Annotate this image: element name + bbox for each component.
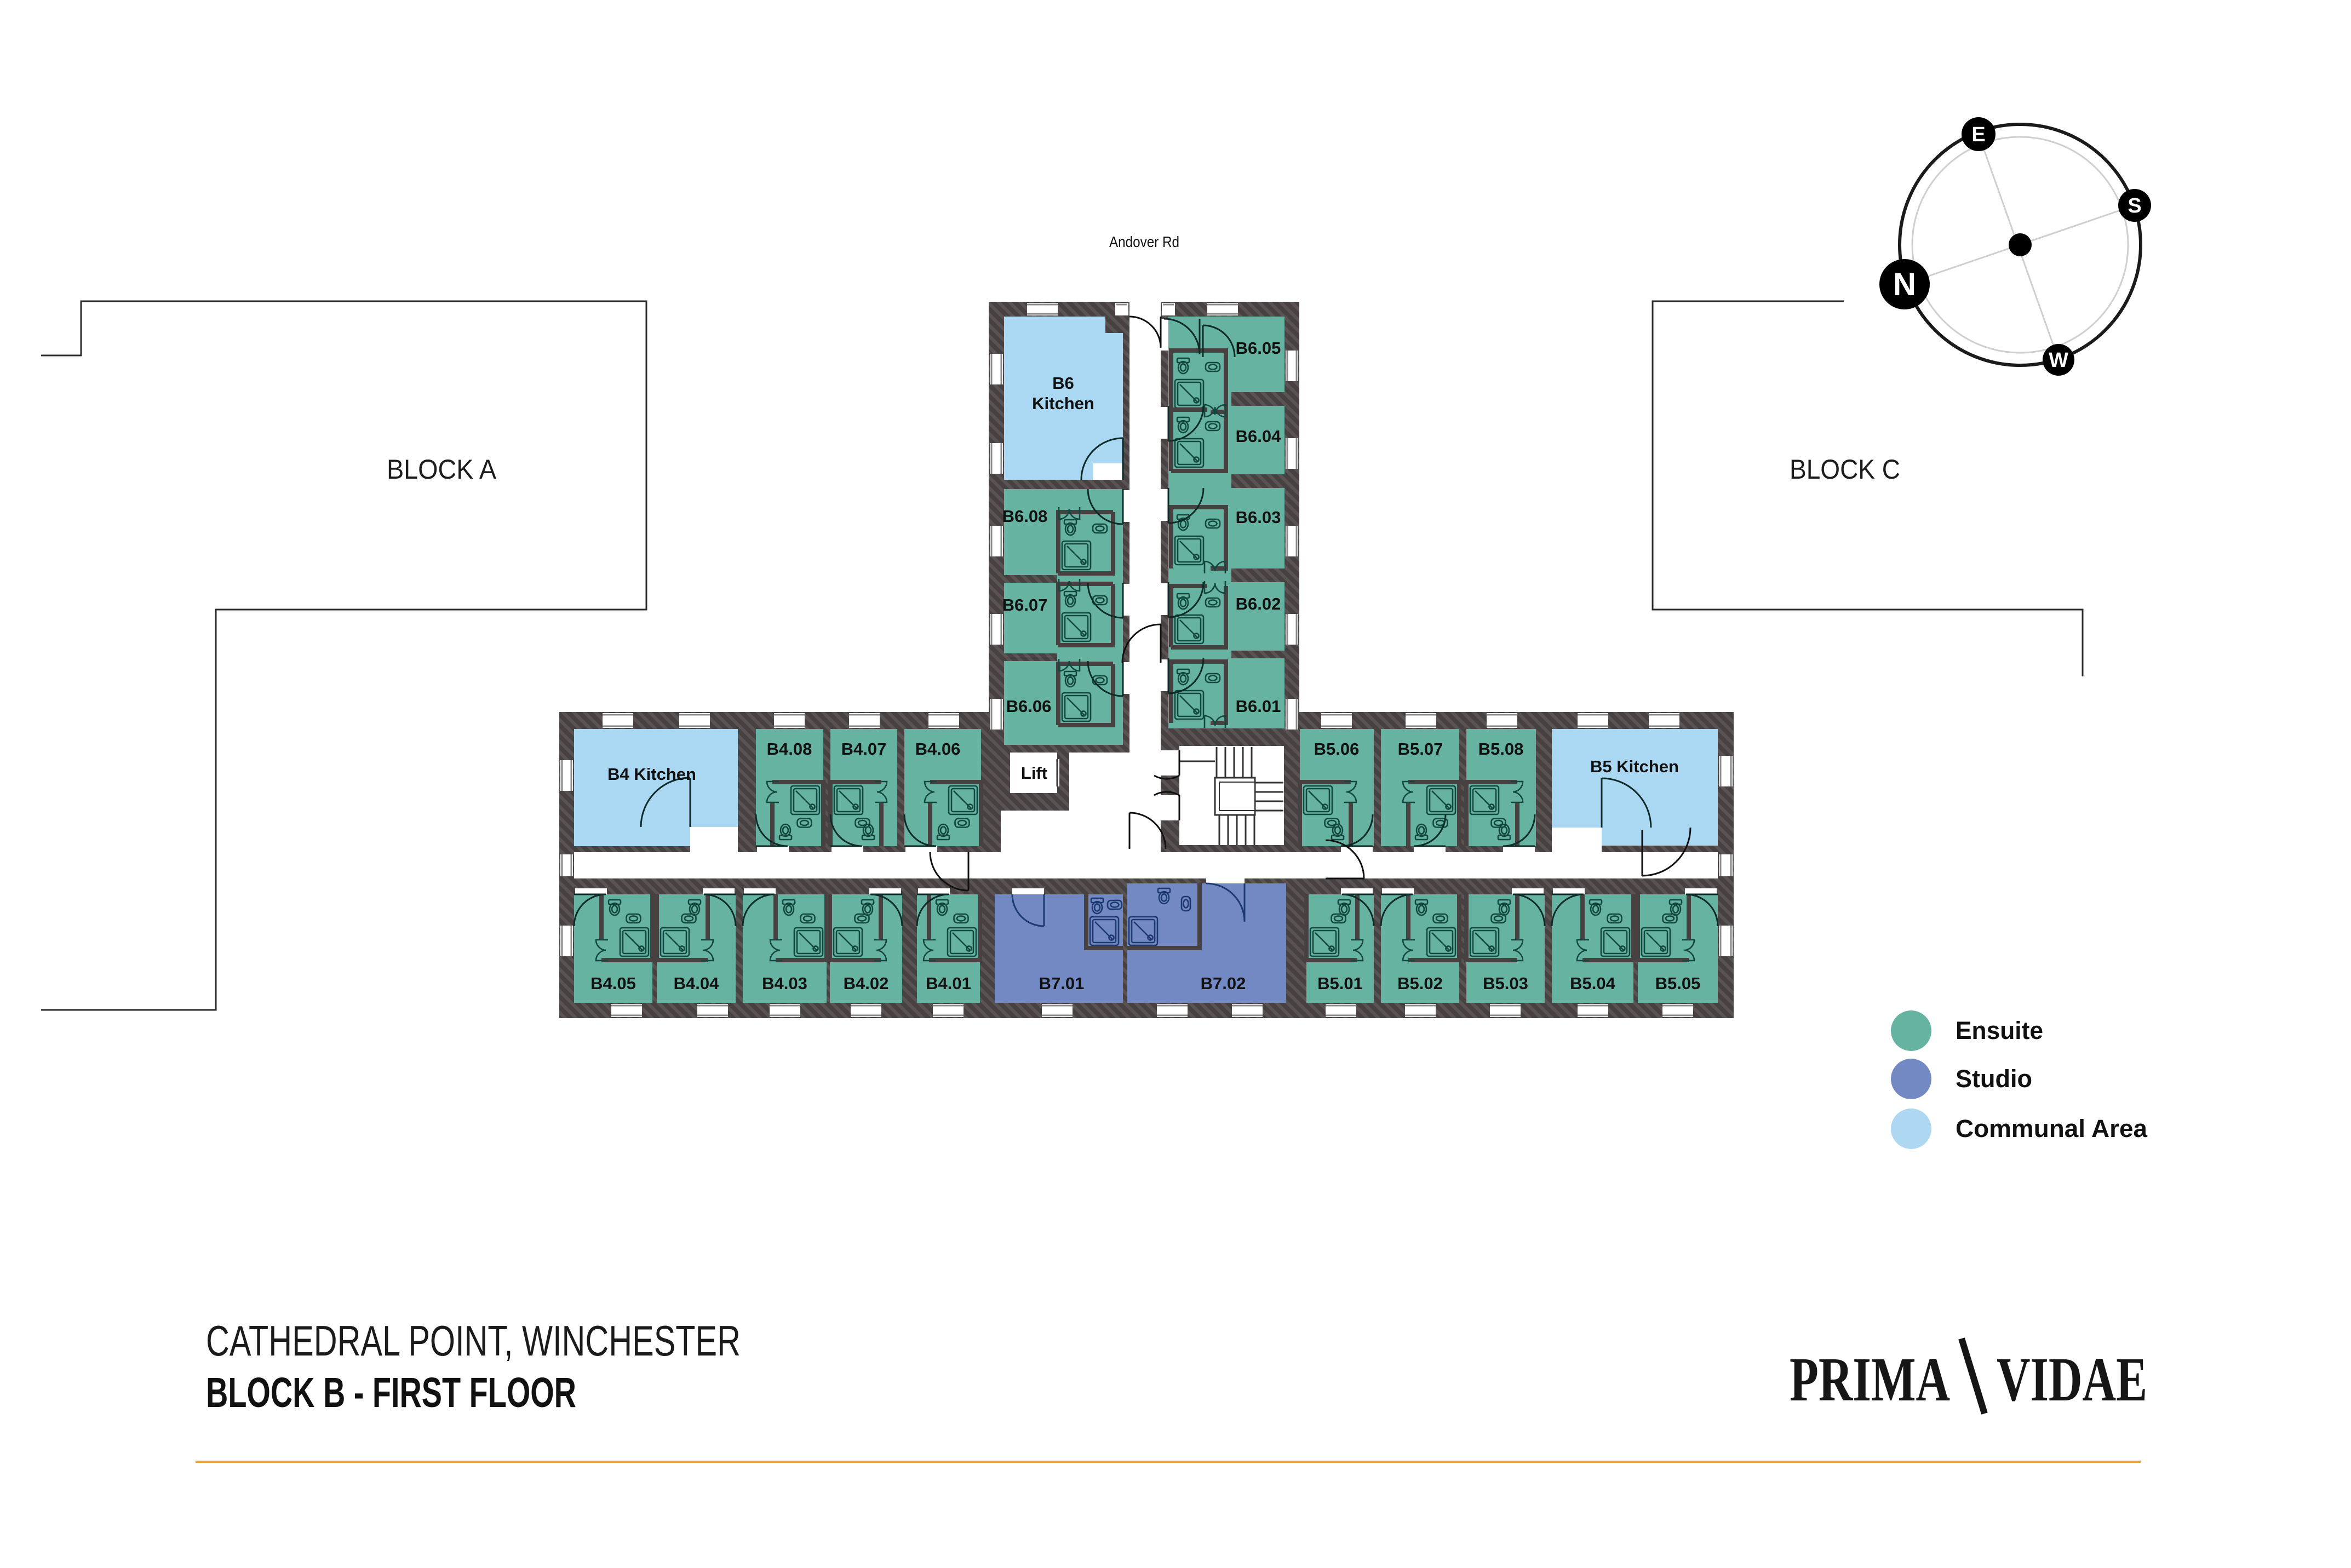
svg-text:PRIMA: PRIMA <box>1790 1345 1950 1414</box>
svg-text:B4.04: B4.04 <box>674 974 719 993</box>
svg-text:Communal Area: Communal Area <box>1956 1115 2148 1142</box>
svg-text:B5.06: B5.06 <box>1314 739 1360 759</box>
svg-text:B5.07: B5.07 <box>1398 739 1443 759</box>
svg-text:N: N <box>1893 267 1916 302</box>
svg-text:B6.05: B6.05 <box>1236 338 1281 358</box>
svg-text:B5.08: B5.08 <box>1478 739 1524 759</box>
svg-text:B4.08: B4.08 <box>767 739 812 759</box>
svg-text:Kitchen: Kitchen <box>1032 394 1094 413</box>
svg-text:B5.01: B5.01 <box>1317 974 1363 993</box>
svg-text:B4.06: B4.06 <box>915 739 961 759</box>
svg-text:B4.02: B4.02 <box>844 974 889 993</box>
svg-text:B5 Kitchen: B5 Kitchen <box>1590 757 1679 776</box>
svg-text:BLOCK B - FIRST FLOOR: BLOCK B - FIRST FLOOR <box>206 1369 576 1416</box>
svg-text:BLOCK A: BLOCK A <box>387 454 497 485</box>
svg-text:B7.01: B7.01 <box>1039 974 1085 993</box>
svg-text:B7.02: B7.02 <box>1201 974 1246 993</box>
svg-text:B4.03: B4.03 <box>762 974 807 993</box>
svg-text:B6.07: B6.07 <box>1002 595 1048 614</box>
svg-text:B6.06: B6.06 <box>1006 697 1052 716</box>
svg-text:Lift: Lift <box>1021 763 1047 783</box>
svg-text:E: E <box>1971 123 1985 146</box>
svg-text:B6.04: B6.04 <box>1236 427 1281 446</box>
svg-text:B6: B6 <box>1052 374 1074 393</box>
svg-text:B4.01: B4.01 <box>926 974 971 993</box>
svg-text:VIDAE: VIDAE <box>1997 1345 2147 1414</box>
svg-text:W: W <box>2049 349 2068 372</box>
svg-text:B5.03: B5.03 <box>1483 974 1528 993</box>
svg-text:B6.08: B6.08 <box>1002 507 1048 526</box>
svg-text:B6.03: B6.03 <box>1236 508 1281 527</box>
svg-text:B4 Kitchen: B4 Kitchen <box>607 765 696 784</box>
svg-text:Studio: Studio <box>1956 1065 2032 1093</box>
svg-text:S: S <box>2128 194 2141 217</box>
svg-text:Ensuite: Ensuite <box>1956 1016 2043 1044</box>
svg-text:B5.04: B5.04 <box>1570 974 1615 993</box>
svg-text:Andover Rd: Andover Rd <box>1109 233 1179 250</box>
svg-text:B5.02: B5.02 <box>1397 974 1443 993</box>
svg-text:B6.02: B6.02 <box>1236 594 1281 613</box>
svg-text:B4.05: B4.05 <box>590 974 636 993</box>
svg-text:B5.05: B5.05 <box>1655 974 1701 993</box>
svg-text:BLOCK C: BLOCK C <box>1790 454 1900 485</box>
svg-text:CATHEDRAL POINT, WINCHESTER: CATHEDRAL POINT, WINCHESTER <box>206 1317 741 1365</box>
svg-text:B4.07: B4.07 <box>841 739 887 759</box>
svg-text:B6.01: B6.01 <box>1236 697 1281 716</box>
